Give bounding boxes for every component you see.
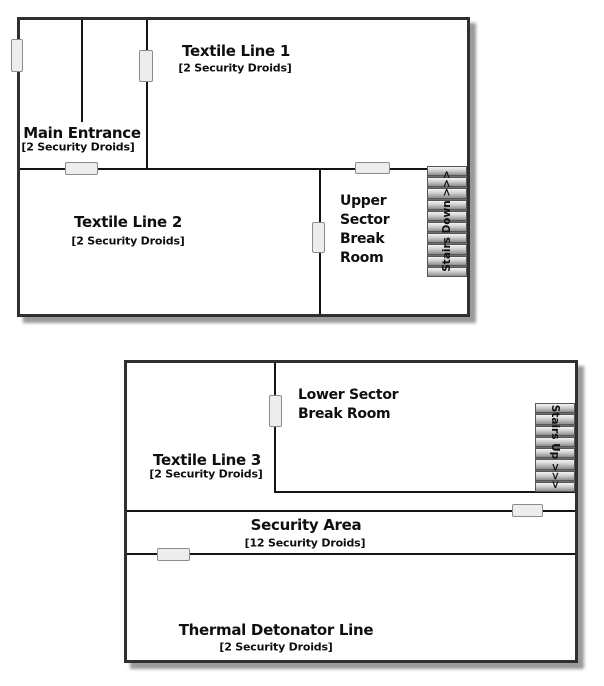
door-textile3-to-breakroom (269, 395, 282, 427)
room-label-upper-break-room: Upper Sector Break Room (340, 192, 389, 268)
room-sublabel-textile-line-3: [2 Security Droids] (149, 468, 262, 481)
wall-entrance-left-divider (81, 20, 83, 122)
floorplan-upper: Stairs Down >>> Textile Line 1 [2 Securi… (17, 17, 470, 317)
door-entrance-to-textile1 (139, 50, 153, 82)
room-sublabel-textile-line-1: [2 Security Droids] (178, 62, 291, 75)
room-label-thermal-detonator-line: Thermal Detonator Line (179, 621, 374, 639)
wall-breakroom-bottom (274, 491, 575, 493)
door-textile2-to-breakroom (312, 222, 325, 253)
room-sublabel-security-area: [12 Security Droids] (245, 537, 366, 550)
door-main-entrance-exterior (11, 39, 23, 72)
stairs-down-label: Stairs Down >>> (441, 170, 453, 272)
room-label-security-area: Security Area (251, 516, 362, 534)
room-label-main-entrance: Main Entrance (23, 124, 141, 142)
door-textile1-to-breakroom (355, 162, 390, 174)
door-entrance-to-textile2 (65, 162, 98, 175)
wall-entrance-right-divider (146, 20, 148, 169)
wall-security-top (127, 510, 575, 512)
room-label-textile-line-1: Textile Line 1 (182, 42, 290, 60)
room-label-textile-line-3: Textile Line 3 (153, 451, 261, 469)
door-security-to-detonator (157, 548, 190, 561)
wall-security-bottom (127, 553, 575, 555)
floorplan-lower: Stairs Up >>> Lower Sector Break Room Te… (124, 360, 578, 663)
room-sublabel-main-entrance: [2 Security Droids] (21, 141, 134, 154)
room-label-textile-line-2: Textile Line 2 (74, 213, 182, 231)
door-breakroom-to-security (512, 504, 543, 517)
room-sublabel-textile-line-2: [2 Security Droids] (71, 235, 184, 248)
wall-breakroom-divider (274, 363, 276, 493)
room-label-lower-break-room: Lower Sector Break Room (298, 386, 398, 424)
room-sublabel-thermal-detonator-line: [2 Security Droids] (219, 641, 332, 654)
stairs-up-label: Stairs Up >>> (549, 405, 561, 489)
